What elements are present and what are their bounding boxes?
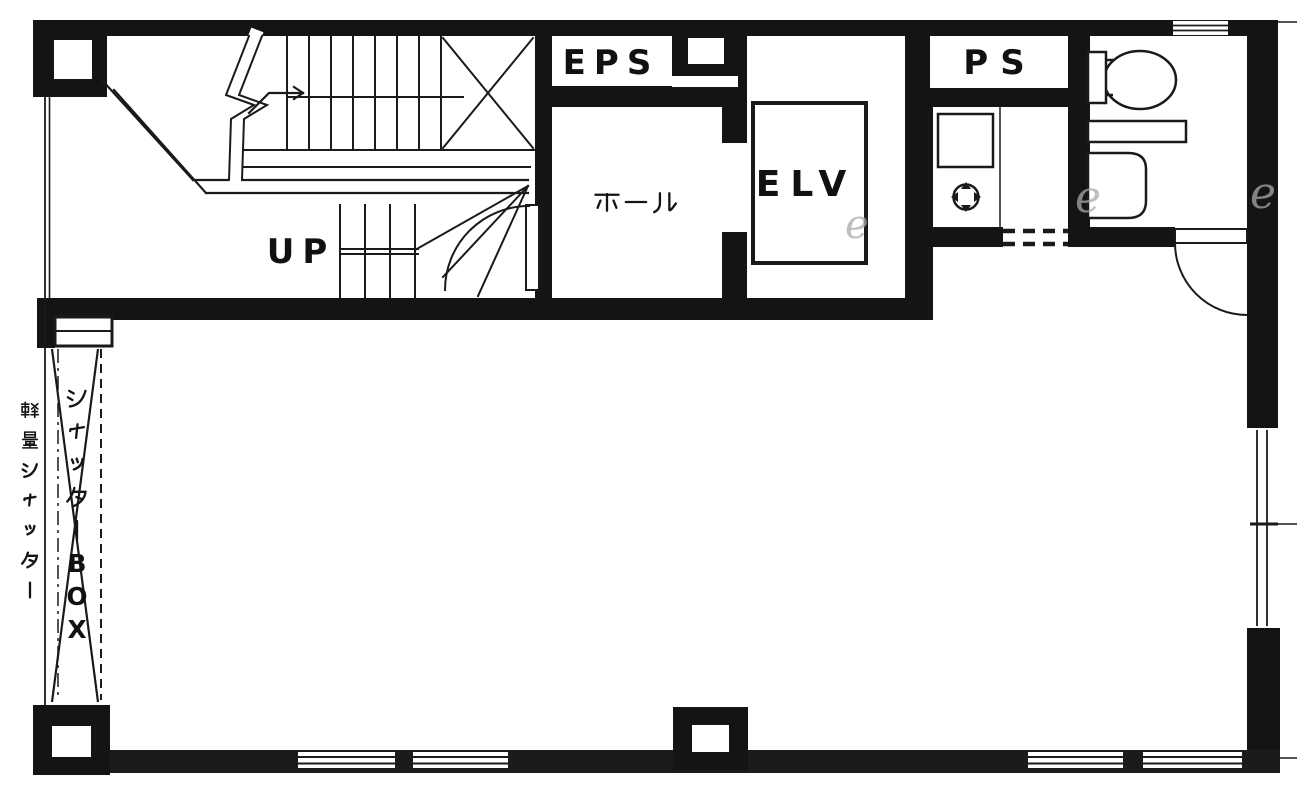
valve-symbol [951,182,981,212]
watermark-letter: e [1250,168,1276,219]
dashed-opening [1003,231,1068,244]
eps-slot [672,76,738,87]
bottom-window [1143,752,1242,768]
room-toilet [1090,36,1247,227]
room-hall [552,107,722,298]
room-staircase [50,36,535,298]
floor-plan-drawing: EPS PS ELV UP BOX e e e [0,0,1297,789]
bottom-window [298,752,395,768]
toilet-door [1175,229,1247,315]
eps-window [688,38,724,64]
floor-plan: EPS PS ELV UP BOX e e e [0,0,1297,789]
bottom-window [1028,752,1123,768]
label-ps: PS [963,43,1036,83]
room-main [50,320,1247,750]
bottom-window [413,752,508,768]
label-lightweight-shutter [22,402,39,597]
elevator-door-opening [722,143,747,232]
sink-fixture [938,114,993,167]
label-eps: EPS [563,43,660,83]
right-window [1250,428,1278,628]
sink-area [938,107,1068,244]
rooms [50,36,1247,750]
room-elevator [747,36,905,298]
